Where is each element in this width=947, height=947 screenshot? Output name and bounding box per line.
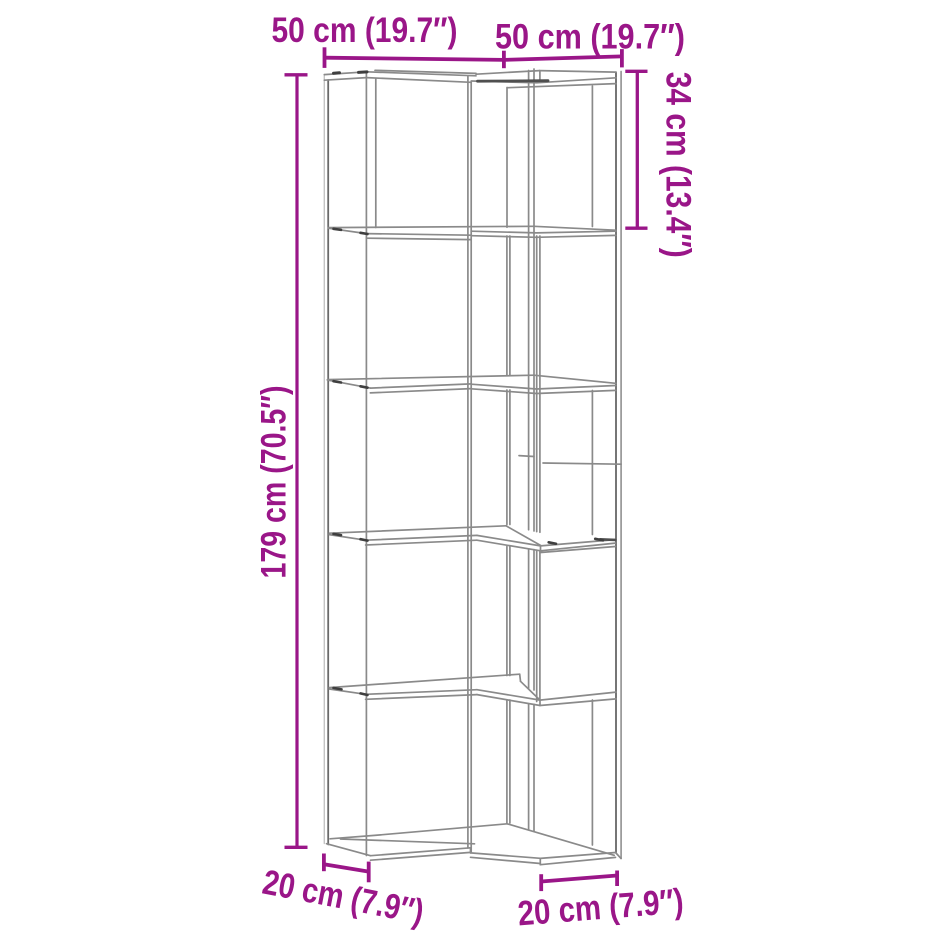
svg-text:50 cm (19.7″): 50 cm (19.7″) [495,17,685,56]
svg-text:179 cm (70.5″): 179 cm (70.5″) [255,386,294,579]
svg-text:34 cm (13.4″): 34 cm (13.4″) [659,72,698,258]
svg-text:50 cm (19.7″): 50 cm (19.7″) [272,11,458,50]
